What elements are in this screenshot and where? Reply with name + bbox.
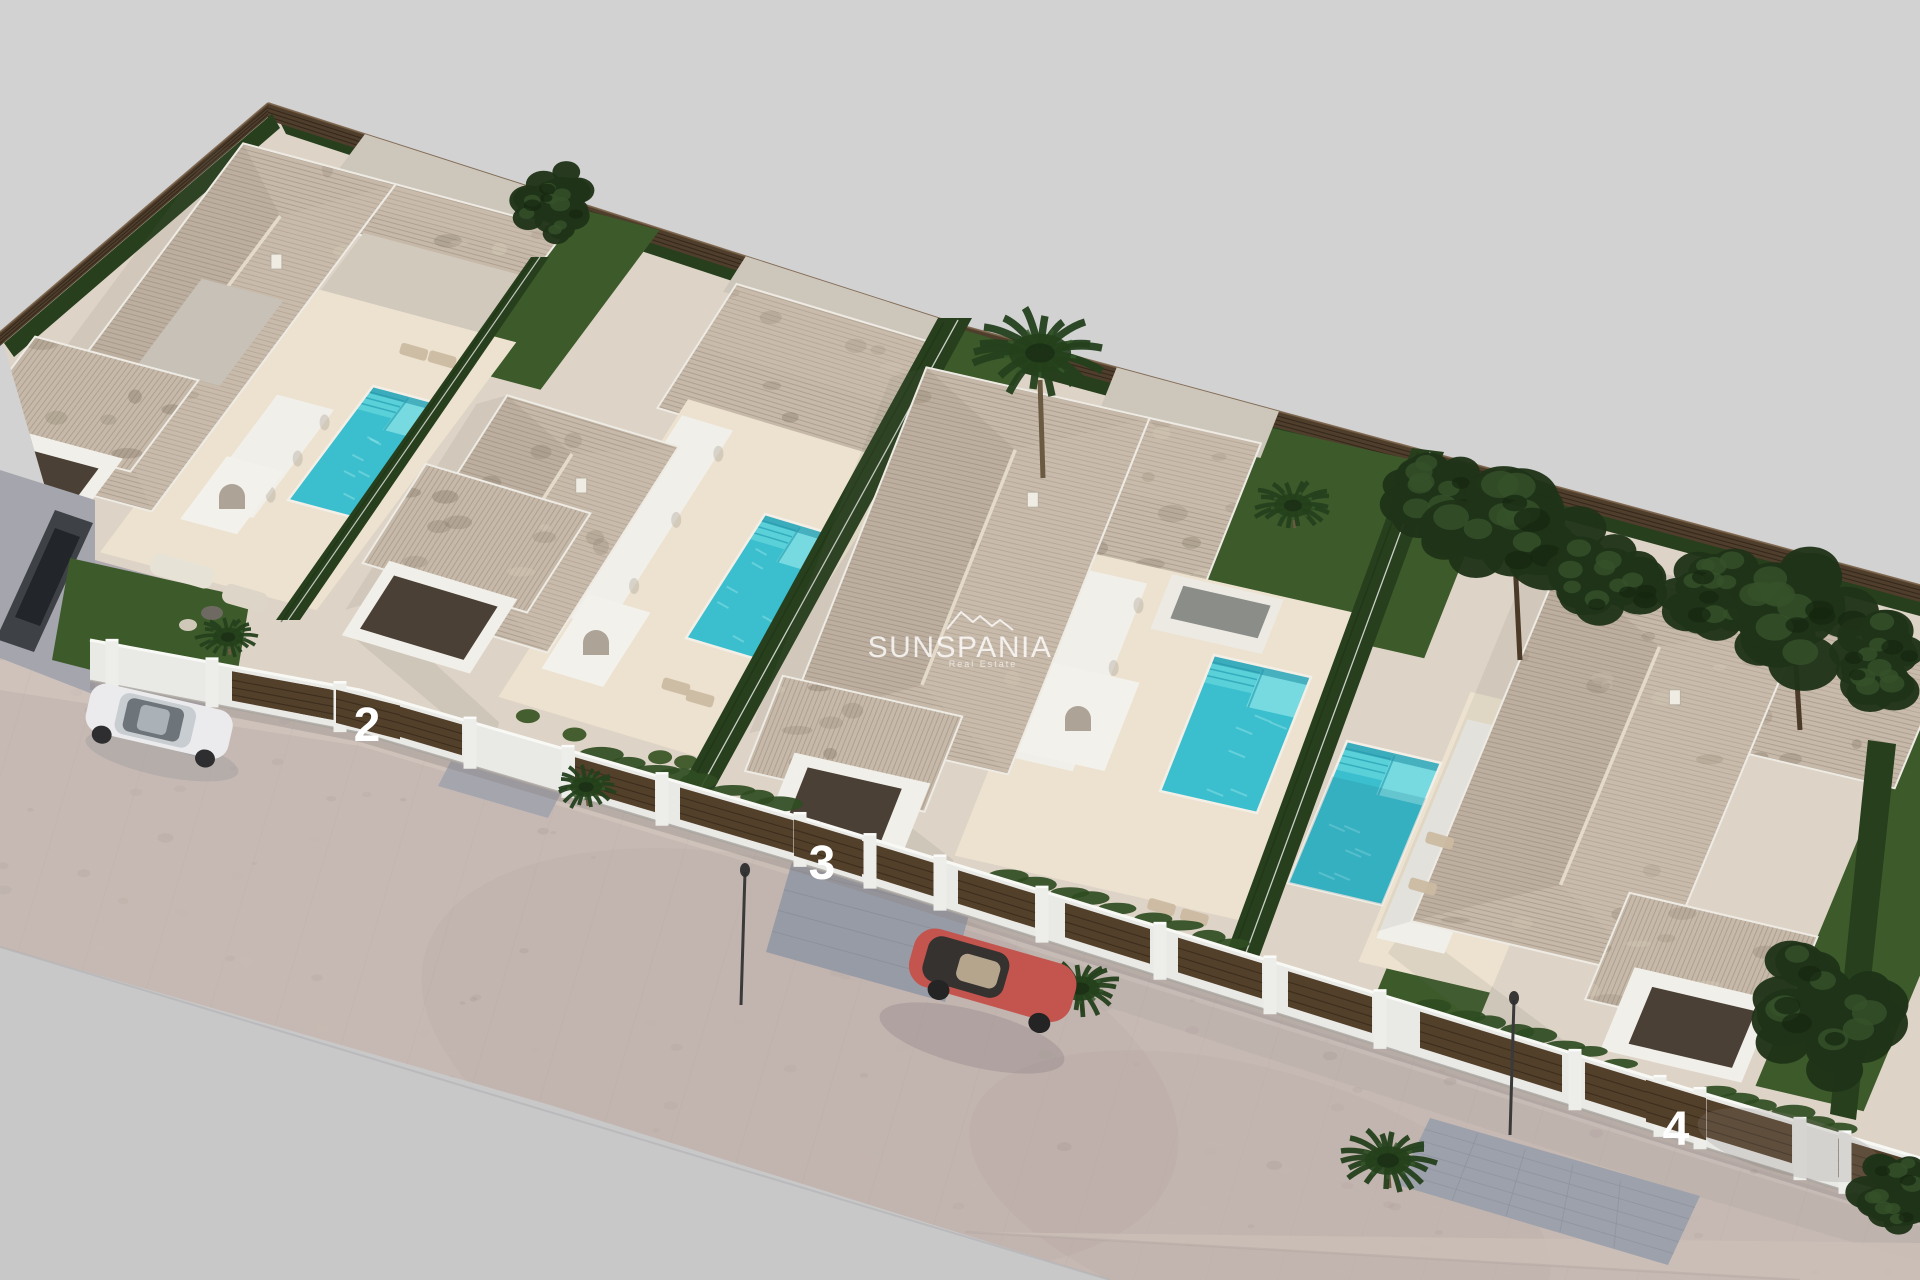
- svg-text:Real Estate: Real Estate: [949, 659, 1018, 669]
- svg-text:4: 4: [1663, 1103, 1690, 1156]
- svg-text:2: 2: [354, 699, 381, 752]
- svg-text:3: 3: [809, 837, 836, 890]
